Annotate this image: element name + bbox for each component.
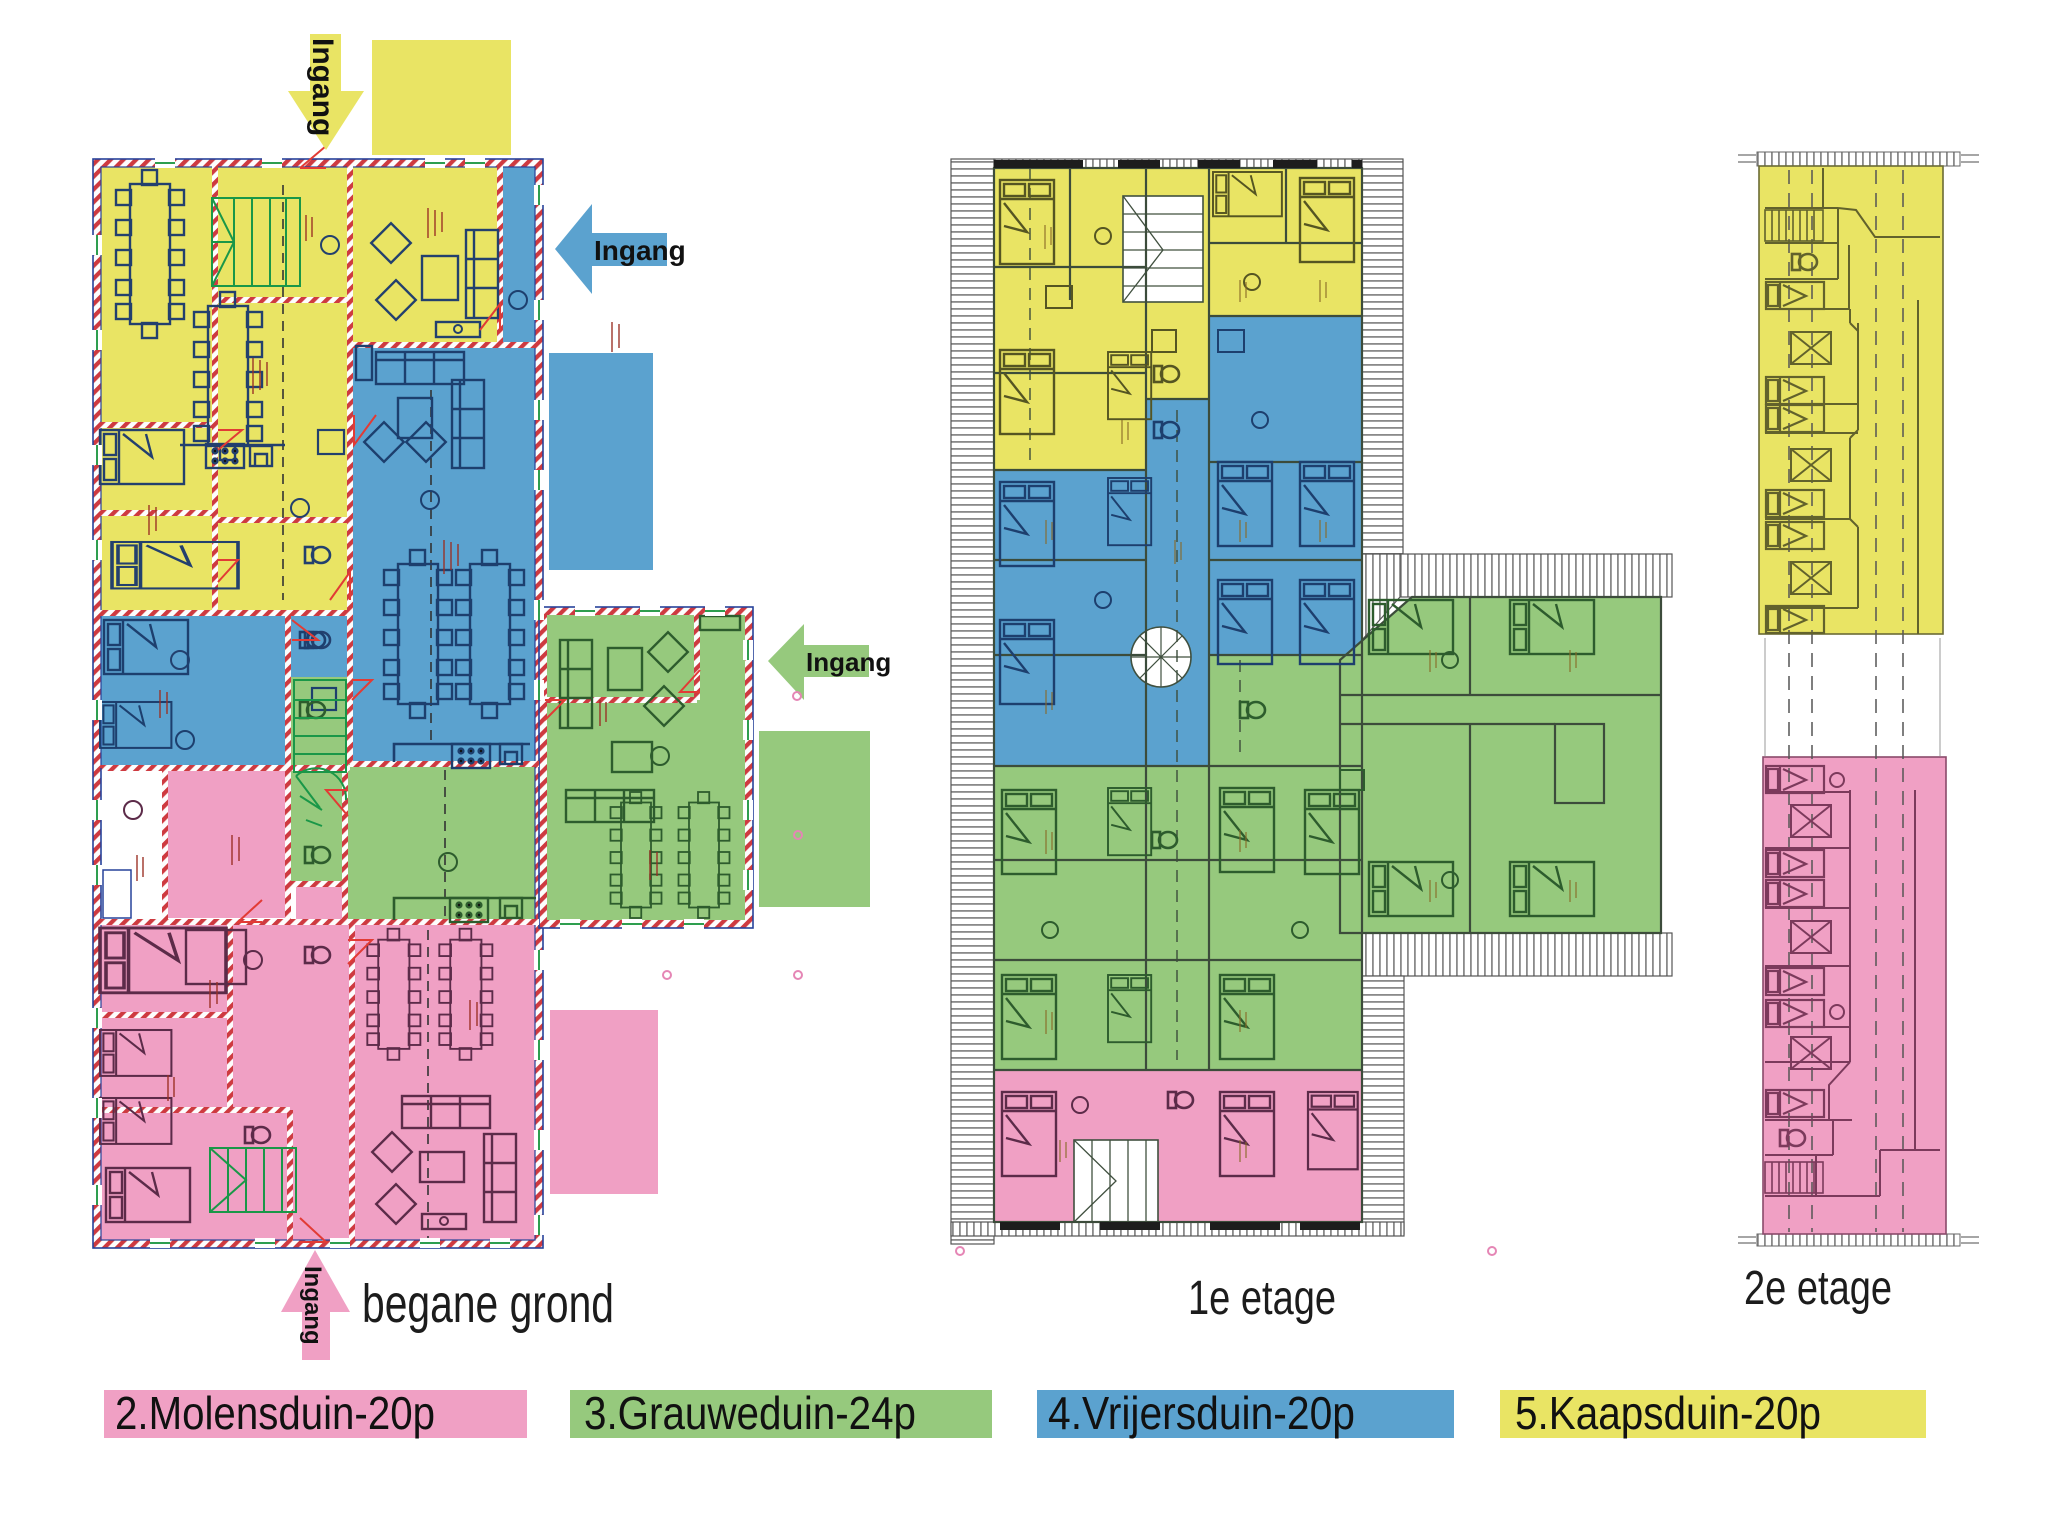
svg-text:1e etage: 1e etage	[1188, 1272, 1336, 1325]
svg-text:Ingang: Ingang	[299, 1266, 326, 1345]
svg-text:Ingang: Ingang	[306, 38, 339, 136]
svg-text:3.Grauweduin-24p: 3.Grauweduin-24p	[584, 1387, 916, 1439]
svg-text:5.Kaapsduin-20p: 5.Kaapsduin-20p	[1515, 1387, 1821, 1439]
svg-text:begane grond: begane grond	[362, 1274, 614, 1334]
svg-text:4.Vrijersduin-20p: 4.Vrijersduin-20p	[1048, 1387, 1355, 1439]
svg-text:2.Molensduin-20p: 2.Molensduin-20p	[115, 1387, 435, 1439]
svg-text:Ingang: Ingang	[594, 235, 686, 266]
svg-text:2e etage: 2e etage	[1744, 1262, 1892, 1315]
svg-text:Ingang: Ingang	[806, 647, 891, 677]
